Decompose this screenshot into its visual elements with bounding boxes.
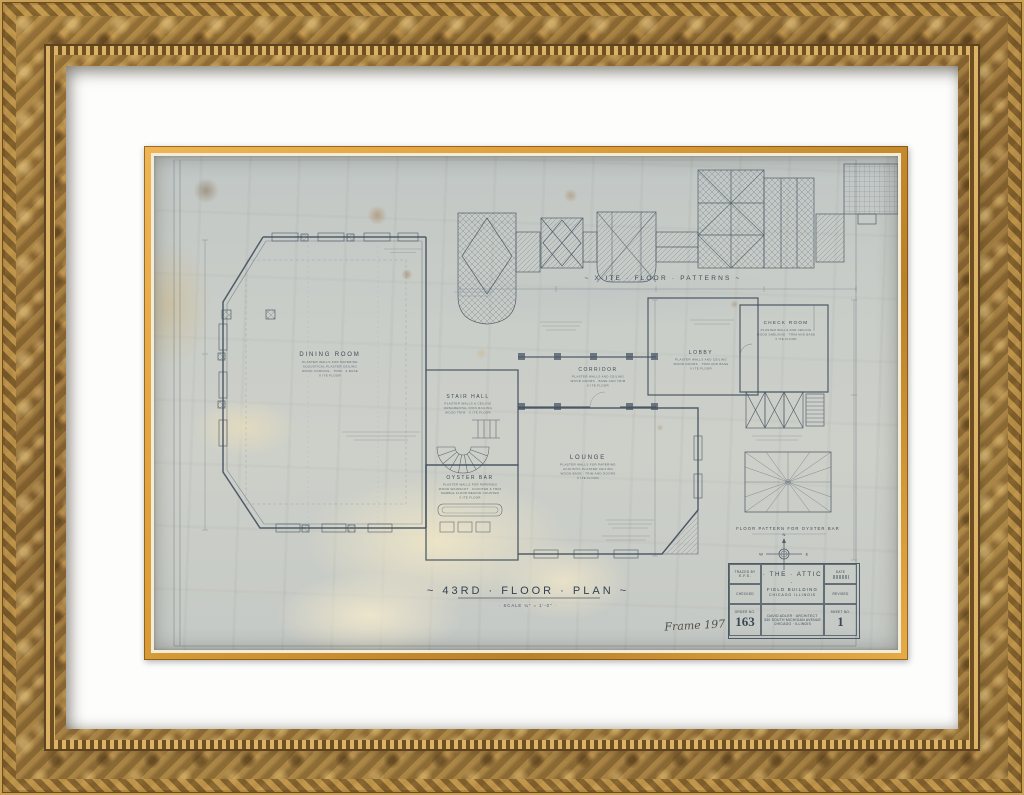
ornate-gold-frame: ~ X·ITE · FLOOR · PATTERNS ~ bbox=[0, 0, 1024, 795]
gold-fillet: ~ X·ITE · FLOOR · PATTERNS ~ bbox=[144, 146, 908, 660]
order-no-value: 163 bbox=[735, 614, 755, 630]
lounge: LOUNGE PLASTER WALLS FOR PAPERING ACOUST… bbox=[518, 408, 702, 558]
oyster-bar-note: PLASTER WALLS FOR PAPERING bbox=[443, 483, 498, 487]
check-room-note: X ITE FLOOR bbox=[775, 337, 797, 341]
floor-plan-drawing: ~ X·ITE · FLOOR · PATTERNS ~ bbox=[154, 156, 898, 650]
date-smudge bbox=[833, 575, 849, 579]
dining-room: DINING ROOM PLASTER WALLS FOR PAPERING A… bbox=[218, 233, 426, 532]
revised-label: REVISED bbox=[832, 592, 848, 596]
oyster-pattern-caption: FLOOR PATTERN FOR OYSTER BAR bbox=[736, 526, 839, 531]
checked-cell: CHECKED bbox=[729, 584, 761, 604]
white-mat: ~ X·ITE · FLOOR · PATTERNS ~ bbox=[66, 66, 958, 729]
compass-s: S bbox=[783, 572, 786, 577]
project-title: · THE · ATTIC · bbox=[762, 571, 823, 587]
dimension-lines bbox=[202, 240, 857, 560]
lounge-note: X ITE FLOOR bbox=[577, 476, 600, 480]
bar-counter bbox=[438, 504, 502, 532]
lounge-note: ACOUSTIC PLASTER CEILING bbox=[563, 467, 613, 471]
oyster-bar-note: X ITE FLOOR bbox=[459, 495, 481, 499]
stair-hall-note: ORNAMENTAL IRON RAILING bbox=[444, 406, 493, 410]
lounge-label: LOUNGE bbox=[570, 455, 606, 461]
oyster-bar-note: WOOD WAINSCOT · COUNTER & TRIM bbox=[439, 487, 502, 491]
project-name-cell: · THE · ATTIC · FIELD BUILDING CHICAGO I… bbox=[761, 564, 824, 604]
revised-cell: REVISED bbox=[824, 584, 857, 604]
sheet-no-value: 1 bbox=[837, 614, 844, 630]
dining-room-note: WOOD CORNICE · TRIM · & BASE bbox=[302, 369, 358, 373]
lobby: LOBBY PLASTER WALLS AND CEILING WOOD DOO… bbox=[648, 298, 758, 395]
winding-stair bbox=[437, 420, 500, 473]
traced-by-cell: TRACED BY E.F.S. bbox=[729, 564, 761, 584]
compass-rose: N W E S bbox=[759, 532, 809, 577]
lobby-note: WOOD DOORS · TRIM AND BASE bbox=[673, 362, 728, 366]
lobby-note: X ITE FLOOR bbox=[690, 367, 713, 371]
oyster-bar-note: MARBLE FLOOR BEHIND COUNTER bbox=[441, 491, 500, 495]
traced-by-value: E.F.S. bbox=[739, 574, 751, 578]
order-no-cell: ORDER NO. 163 bbox=[729, 604, 761, 636]
xite-pattern-strip bbox=[458, 164, 898, 324]
lobby-label: LOBBY bbox=[689, 350, 713, 356]
corridor-columns bbox=[518, 353, 658, 410]
date-cell: DATE bbox=[824, 564, 857, 584]
elevator-bank bbox=[746, 392, 824, 428]
compass-n: N bbox=[783, 532, 786, 537]
blueprint-sheet: ~ X·ITE · FLOOR · PATTERNS ~ bbox=[154, 156, 898, 650]
stair-hall-note: PLASTER WALLS & CEILING bbox=[444, 402, 492, 406]
title-block: TRACED BY E.F.S. · THE · ATTIC · FIELD B… bbox=[728, 563, 860, 639]
architect-city: CHICAGO · ILLINOIS bbox=[774, 622, 811, 626]
check-room-note: PLASTER WALLS AND CEILING bbox=[761, 328, 812, 332]
oyster-bar-label: OYSTER BAR bbox=[446, 475, 493, 481]
date-label: DATE bbox=[836, 570, 845, 574]
check-room-note: WOOD SHELVING · TRIM AND BASE bbox=[757, 333, 815, 337]
architect-cell: DAVID ADLER · ARCHITECT 330 SOUTH MICHIG… bbox=[761, 604, 824, 636]
frame-number-handwriting: Frame 197 bbox=[663, 617, 725, 633]
lobby-note: PLASTER WALLS AND CEILING bbox=[675, 358, 727, 362]
lounge-note: WOOD BASE · TRIM AND DOORS bbox=[560, 472, 615, 476]
dining-room-note: ACOUSTICAL PLASTER CEILING bbox=[303, 365, 358, 369]
sheet-no-cell: SHEET NO. 1 bbox=[824, 604, 857, 636]
sheet-no-label: SHEET NO. bbox=[831, 610, 851, 614]
stair-hall-label: STAIR HALL bbox=[446, 394, 489, 400]
architect-address: 330 SOUTH MICHIGAN AVENUE bbox=[764, 618, 821, 622]
stair-hall-note: WOOD TRIM · X ITE FLOOR bbox=[445, 411, 492, 415]
corridor-label: CORRIDOR bbox=[578, 367, 617, 373]
dining-room-label: DINING ROOM bbox=[299, 352, 360, 358]
plan-scale: · SCALE ¼" = 1'-0" · bbox=[499, 603, 557, 608]
checked-label: CHECKED bbox=[736, 592, 754, 596]
compass-e: E bbox=[806, 552, 809, 557]
plan-title: ~ 43RD · FLOOR · PLAN ~ bbox=[427, 585, 629, 597]
corridor-note: WOOD DOORS · BASE AND TRIM bbox=[570, 379, 625, 383]
xite-pattern-heading: ~ X·ITE · FLOOR · PATTERNS ~ bbox=[584, 275, 741, 282]
sheet-border bbox=[174, 160, 856, 646]
architect-name: DAVID ADLER · ARCHITECT bbox=[767, 614, 817, 618]
order-no-label: ORDER NO. bbox=[735, 610, 756, 614]
north-arrow-icon bbox=[782, 538, 786, 543]
small-annotations bbox=[342, 249, 802, 540]
project-building: FIELD BUILDING bbox=[767, 587, 818, 593]
sheet-title: ~ 43RD · FLOOR · PLAN ~ · SCALE ¼" = 1'-… bbox=[427, 585, 629, 608]
compass-w: W bbox=[759, 552, 763, 557]
corridor-note: PLASTER WALLS AND CEILING bbox=[572, 375, 624, 379]
oyster-floor-pattern: FLOOR PATTERN FOR OYSTER BAR bbox=[736, 452, 839, 534]
lounge-note: PLASTER WALLS FOR PAPERING bbox=[560, 463, 616, 467]
oyster-bar: OYSTER BAR PLASTER WALLS FOR PAPERING WO… bbox=[426, 465, 518, 560]
corridor: CORRIDOR PLASTER WALLS AND CEILING WOOD … bbox=[518, 353, 658, 410]
cream-liner: ~ X·ITE · FLOOR · PATTERNS ~ bbox=[151, 153, 901, 653]
stair-hall: STAIR HALL PLASTER WALLS & CEILING ORNAM… bbox=[426, 370, 518, 473]
check-room: CHECK ROOM PLASTER WALLS AND CEILING WOO… bbox=[740, 305, 828, 392]
dining-room-note: X ITE FLOOR bbox=[319, 374, 342, 378]
corridor-note: X ITE FLOOR bbox=[587, 384, 610, 388]
dining-room-note: PLASTER WALLS FOR PAPERING bbox=[302, 360, 358, 364]
project-city: CHICAGO ILLINOIS bbox=[769, 593, 816, 597]
traced-by-label: TRACED BY bbox=[735, 570, 756, 574]
check-room-label: CHECK ROOM bbox=[764, 320, 809, 325]
